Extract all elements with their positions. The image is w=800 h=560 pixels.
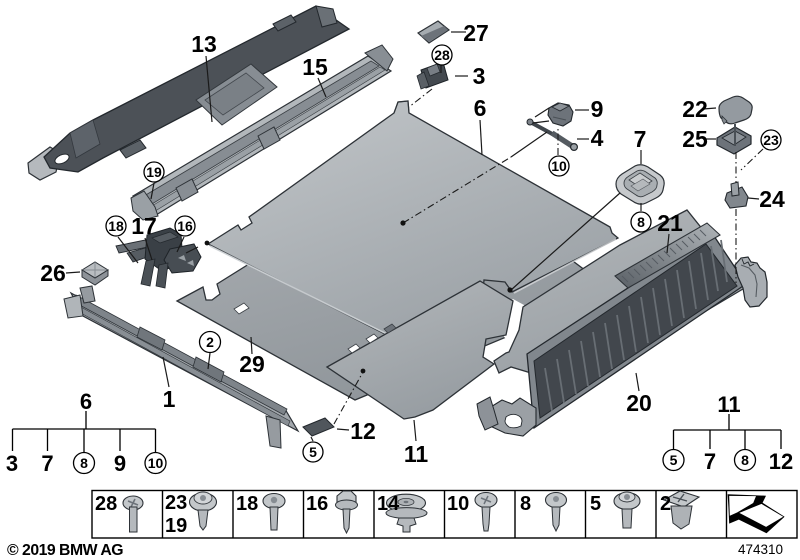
svg-text:25: 25 xyxy=(682,126,708,152)
svg-text:10: 10 xyxy=(148,455,164,471)
svg-text:19: 19 xyxy=(165,515,187,537)
svg-text:10: 10 xyxy=(447,493,469,515)
svg-text:15: 15 xyxy=(302,54,328,80)
svg-text:7: 7 xyxy=(41,451,53,476)
svg-text:6: 6 xyxy=(80,389,92,414)
svg-text:20: 20 xyxy=(626,390,652,416)
svg-text:8: 8 xyxy=(520,493,531,515)
svg-text:27: 27 xyxy=(463,20,489,46)
svg-text:6: 6 xyxy=(474,95,487,121)
svg-text:5: 5 xyxy=(670,452,678,468)
svg-text:10: 10 xyxy=(551,158,567,174)
svg-text:23: 23 xyxy=(763,132,779,148)
svg-text:9: 9 xyxy=(591,96,604,122)
svg-text:18: 18 xyxy=(236,493,258,515)
svg-text:12: 12 xyxy=(350,418,376,444)
svg-text:13: 13 xyxy=(191,31,217,57)
svg-text:12: 12 xyxy=(769,449,793,474)
svg-text:8: 8 xyxy=(80,455,88,471)
svg-text:23: 23 xyxy=(165,492,187,514)
svg-text:29: 29 xyxy=(239,351,265,377)
svg-text:28: 28 xyxy=(434,47,450,63)
svg-text:19: 19 xyxy=(146,164,162,180)
svg-text:5: 5 xyxy=(309,444,317,460)
svg-text:9: 9 xyxy=(114,451,126,476)
svg-text:3: 3 xyxy=(473,63,486,89)
svg-text:14: 14 xyxy=(377,493,400,515)
svg-text:© 2019 BMW AG: © 2019 BMW AG xyxy=(7,542,123,559)
svg-text:16: 16 xyxy=(177,218,193,234)
svg-text:5: 5 xyxy=(590,493,601,515)
svg-text:11: 11 xyxy=(717,392,740,417)
svg-text:24: 24 xyxy=(759,186,785,212)
svg-text:4: 4 xyxy=(591,125,604,151)
svg-text:2: 2 xyxy=(206,334,214,350)
svg-text:2: 2 xyxy=(660,493,671,515)
svg-text:3: 3 xyxy=(6,451,18,476)
svg-text:7: 7 xyxy=(634,126,647,152)
svg-text:22: 22 xyxy=(682,96,708,122)
svg-text:11: 11 xyxy=(404,441,429,467)
svg-text:18: 18 xyxy=(108,218,124,234)
svg-text:26: 26 xyxy=(40,260,66,286)
svg-text:21: 21 xyxy=(657,210,683,236)
svg-text:8: 8 xyxy=(741,452,749,468)
svg-text:1: 1 xyxy=(163,386,176,412)
svg-text:474310: 474310 xyxy=(738,542,783,557)
svg-text:8: 8 xyxy=(637,214,645,230)
svg-text:7: 7 xyxy=(704,449,716,474)
svg-text:16: 16 xyxy=(306,493,328,515)
svg-text:17: 17 xyxy=(131,213,157,239)
svg-text:28: 28 xyxy=(95,493,117,515)
